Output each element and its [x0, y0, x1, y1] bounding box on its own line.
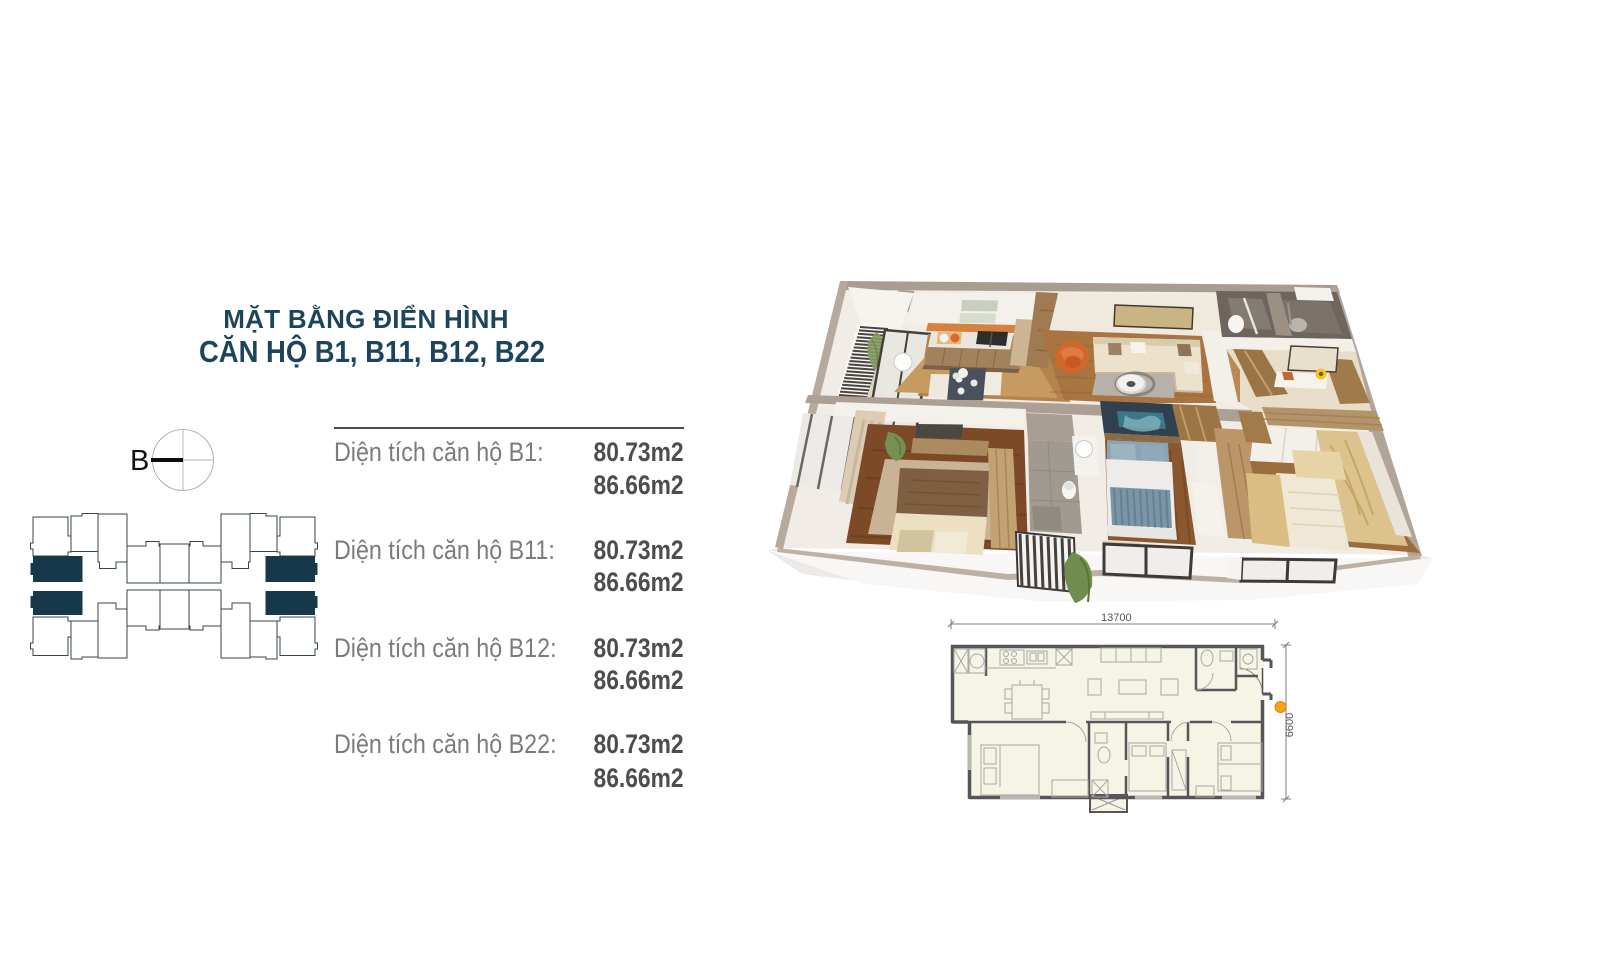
- svg-text:B: B: [130, 445, 149, 477]
- svg-text:6600: 6600: [1284, 713, 1296, 737]
- svg-text:13700: 13700: [1101, 612, 1132, 624]
